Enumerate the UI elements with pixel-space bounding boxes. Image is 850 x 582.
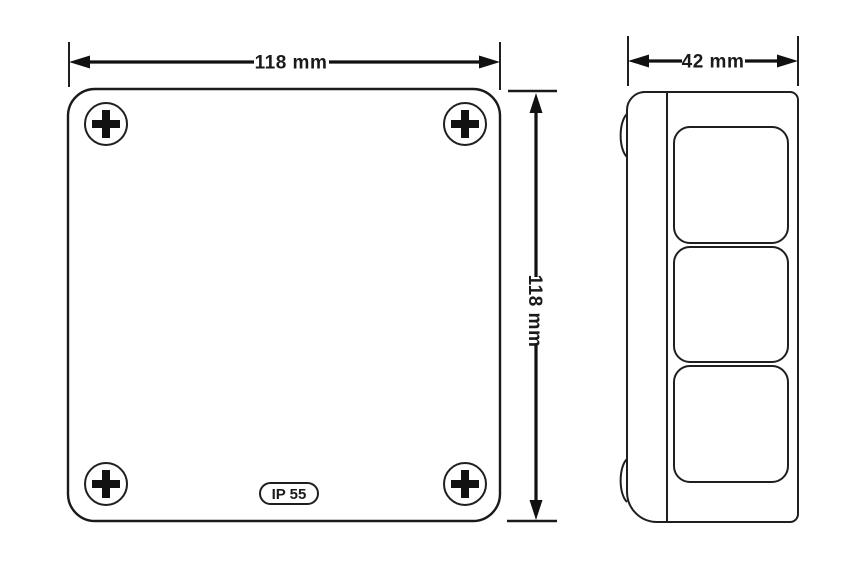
ip-rating-label: IP 55	[272, 486, 307, 503]
dim-height-label: 118 mm	[524, 275, 545, 348]
knockout-panel-1	[674, 127, 788, 243]
dimension-depth: 42 mm	[628, 36, 798, 86]
drawing-canvas: IP 55 118 mm	[0, 0, 850, 582]
side-view	[621, 92, 798, 522]
dimension-height: 118 mm	[507, 91, 557, 521]
phillips-screw-icon	[92, 110, 120, 138]
dim-width-label: 118 mm	[255, 53, 328, 74]
screw-top-right	[444, 103, 486, 145]
phillips-screw-icon	[451, 470, 479, 498]
knockout-panel-3	[674, 366, 788, 482]
dim-arrow-down-icon	[530, 500, 543, 520]
screw-bottom-left	[85, 463, 127, 505]
dim-arrow-right-icon	[777, 55, 798, 68]
dim-arrow-left-icon	[628, 55, 649, 68]
dim-arrow-right-icon	[479, 56, 500, 69]
dim-arrow-left-icon	[69, 56, 90, 69]
junction-box-technical-drawing: IP 55 118 mm	[0, 0, 850, 582]
knockout-panel-2	[674, 247, 788, 362]
ip-rating-badge: IP 55	[260, 483, 318, 504]
front-view-outline	[68, 89, 500, 521]
front-view: IP 55	[68, 89, 500, 521]
phillips-screw-icon	[92, 470, 120, 498]
screw-bottom-right	[444, 463, 486, 505]
screw-top-left	[85, 103, 127, 145]
dimension-width: 118 mm	[69, 42, 500, 90]
side-view-outline	[627, 92, 798, 522]
dim-depth-label: 42 mm	[682, 52, 745, 73]
phillips-screw-icon	[451, 110, 479, 138]
